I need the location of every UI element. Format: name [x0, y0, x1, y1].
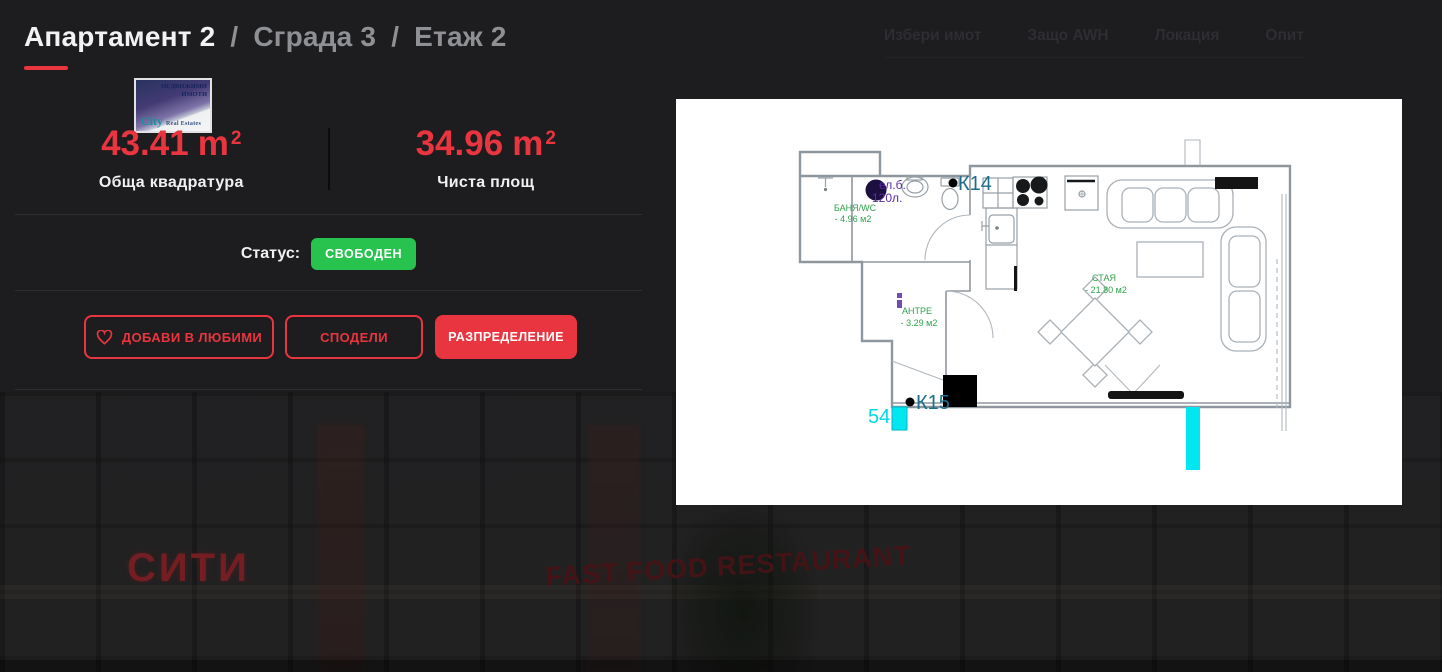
plan-highlights [892, 407, 1200, 470]
background-column [318, 425, 364, 672]
background-bottom-strip [0, 660, 1442, 672]
toilet-bowl [942, 189, 958, 210]
floorplan-panel: БАНЯ/WC - 4.96 м2 АНТРЕ - 3.29 м2 СТАЯ -… [676, 99, 1402, 505]
background-tree [668, 500, 818, 672]
coffee-table [1137, 242, 1203, 277]
background-sign-city: СИТИ [127, 546, 250, 591]
title-accent-underline [24, 66, 68, 70]
status-label: Статус: [241, 245, 300, 263]
stat-total-area-label: Обща квадратура [15, 174, 328, 192]
stat-net-area-label: Чиста площ [330, 174, 643, 192]
dining-chair [1038, 320, 1062, 344]
floorplan-drawing: БАНЯ/WC - 4.96 м2 АНТРЕ - 3.29 м2 СТАЯ -… [676, 99, 1402, 505]
add-to-favorites-button[interactable]: ДОБАВИ В ЛЮБИМИ [84, 315, 274, 359]
bathroom-area: - 4.96 м2 [835, 214, 872, 224]
hallway-label: АНТРЕ [902, 306, 932, 316]
nav-item-experience[interactable]: Опит [1265, 27, 1304, 45]
boiler-label-1: ел.б. [879, 178, 906, 192]
living-room-furniture [1038, 180, 1266, 387]
entrance-door-arc [946, 291, 993, 338]
livingroom-label: СТАЯ [1092, 273, 1116, 283]
neighbor-wall-stub [1185, 140, 1200, 165]
kitchen-counter [986, 208, 1017, 289]
status-row: Статус: СВОБОДЕН [15, 234, 642, 274]
title-building: Сграда 3 [253, 21, 376, 52]
nav-item-why[interactable]: Защо AWH [1027, 27, 1108, 45]
tv-unit [1215, 177, 1258, 189]
livingroom-area: - 21.80 м2 [1085, 285, 1127, 295]
layout-button-label: РАЗПРЕДЕЛЕНИЕ [448, 330, 564, 344]
divider [15, 290, 642, 291]
dining-chair [1128, 320, 1152, 344]
highlight-54[interactable] [892, 407, 907, 430]
marker-k14[interactable]: К14 [958, 173, 992, 195]
k15-dot [906, 398, 915, 407]
dining-table [1061, 298, 1129, 366]
title-apartment: Апартамент 2 [24, 21, 215, 52]
nav-item-location[interactable]: Локация [1155, 27, 1220, 45]
page-title: Апартамент 2 / Сграда 3 / Етаж 2 [24, 21, 507, 53]
stat-total-area-value: 43.41m2 [15, 126, 328, 161]
layout-button[interactable]: РАЗПРЕДЕЛЕНИЕ [435, 315, 577, 359]
favorites-button-label: ДОБАВИ В ЛЮБИМИ [122, 330, 262, 345]
background-column [588, 425, 640, 672]
window-sill-bar [1108, 391, 1184, 399]
title-separator: / [230, 21, 238, 52]
title-floor: Етаж 2 [414, 21, 506, 52]
window-marker [1105, 365, 1160, 394]
boiler-label-2: 120л. [872, 191, 902, 205]
hallway-area: - 3.29 м2 [901, 318, 938, 328]
highlight-balcony[interactable] [1186, 407, 1200, 470]
bathroom-label: БАНЯ/WC [834, 203, 877, 213]
divider [15, 214, 642, 215]
status-badge: СВОБОДЕН [311, 238, 416, 270]
stove-burners [1016, 177, 1048, 207]
share-button[interactable]: СПОДЕЛИ [285, 315, 423, 359]
share-button-label: СПОДЕЛИ [320, 330, 388, 345]
divider [15, 389, 642, 390]
balcony-railing [1282, 194, 1286, 431]
nav-item-choose-property[interactable]: Избери имот [884, 27, 981, 45]
bathroom-door-arc [925, 215, 970, 260]
top-navigation: Избери имот Защо AWH Локация Опит [884, 27, 1304, 58]
k14-dot [949, 179, 958, 188]
area-stats: 43.41m2 Обща квадратура 34.96m2 Чиста пл… [15, 126, 642, 192]
heart-icon [96, 330, 113, 345]
stat-net-area: 34.96m2 Чиста площ [330, 126, 643, 192]
shower-tap [818, 178, 833, 187]
marker-54[interactable]: 54 [868, 406, 890, 428]
stat-total-area: 43.41m2 Обща квадратура [15, 126, 328, 192]
logo-top-text: НЕДВИЖИМИИМОТИ [136, 80, 210, 99]
stat-net-area-value: 34.96m2 [330, 126, 643, 161]
kitchen-sink [989, 215, 1014, 243]
title-separator: / [391, 21, 399, 52]
page: СИТИ FAST FOOD RESTAURANT Избери имот За… [0, 0, 1442, 672]
marker-k15[interactable]: К15 [916, 392, 950, 414]
